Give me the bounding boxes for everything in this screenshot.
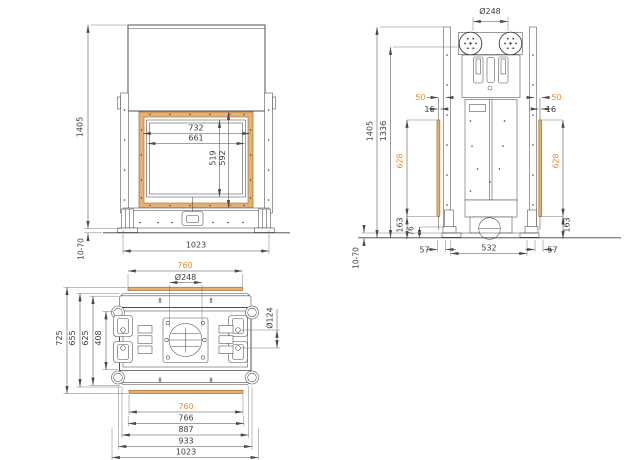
dim-front-opening-height-outer: 592 [218,150,227,165]
dim-top-width-766: 766 [178,414,193,423]
left-foot [122,209,134,228]
rating-plate [470,105,486,112]
right-foot [259,209,271,228]
dim-top-glass-width-top: 760 [177,261,192,270]
dim-top-width-1023: 1023 [176,448,196,457]
dim-top-width-887: 887 [178,425,193,434]
right-rail [530,27,537,232]
dim-side-flue-diameter: Ø248 [479,6,501,16]
flue-collar [163,318,208,363]
dim-side-163-left: 163 [396,217,405,232]
dim-top-glass-width-bottom: 760 [178,402,193,411]
bottom-glass-strip [129,390,243,393]
dim-front-opening-width-inner: 661 [188,134,203,143]
dim-front-foot-adjust: 10-70 [77,238,86,260]
dim-side-foot-adjust: 10-70 [352,247,361,269]
dim-side-plinth: 76 [407,226,416,236]
right-pulley [499,32,522,55]
left-pulley [459,32,482,55]
dim-top-flue-diameter: Ø248 [175,272,197,282]
dim-top-width-933: 933 [178,437,193,446]
dim-front-opening-width-outer: 732 [188,124,203,133]
dim-side-depth: 532 [481,244,496,253]
dim-front-base-width: 1023 [186,241,206,250]
top-view [112,287,259,393]
dim-side-overall-height: 1405 [366,121,375,141]
dim-top-depth-625: 625 [81,330,90,345]
dim-side-offset50-right: 50 [551,93,561,102]
dim-side-gap16-left: 16 [424,105,434,114]
dim-side-57-right: 57 [547,246,557,255]
dim-side-gap16-right: 16 [546,105,556,114]
left-rail [444,27,451,232]
drawing-sheet: 1405 10-70 1023 732 661 519 592 [0,0,624,460]
firebox-body [465,100,517,240]
dim-side-57-left: 57 [419,246,429,255]
dim-front-overall-height: 1405 [76,117,85,137]
dim-side-glass-height-right: 628 [552,153,561,168]
dim-top-depth-408: 408 [94,330,103,345]
dim-side-glass-height-left: 628 [396,153,405,168]
rear-glass-edge [539,120,542,217]
dim-top-latch-circle: Ø124 [265,307,275,329]
dim-top-depth-725: 725 [55,330,64,345]
dim-top-depth-655: 655 [68,330,77,345]
dim-side-163-right: 163 [563,217,572,232]
dim-side-offset50-left: 50 [415,93,425,102]
dim-front-opening-height-inner: 519 [209,150,218,165]
front-glass-edge [437,120,440,217]
dim-side-rail-height: 1336 [379,121,388,141]
top-glass-strip [128,287,243,290]
technical-drawing: 1405 10-70 1023 732 661 519 592 [0,0,624,460]
